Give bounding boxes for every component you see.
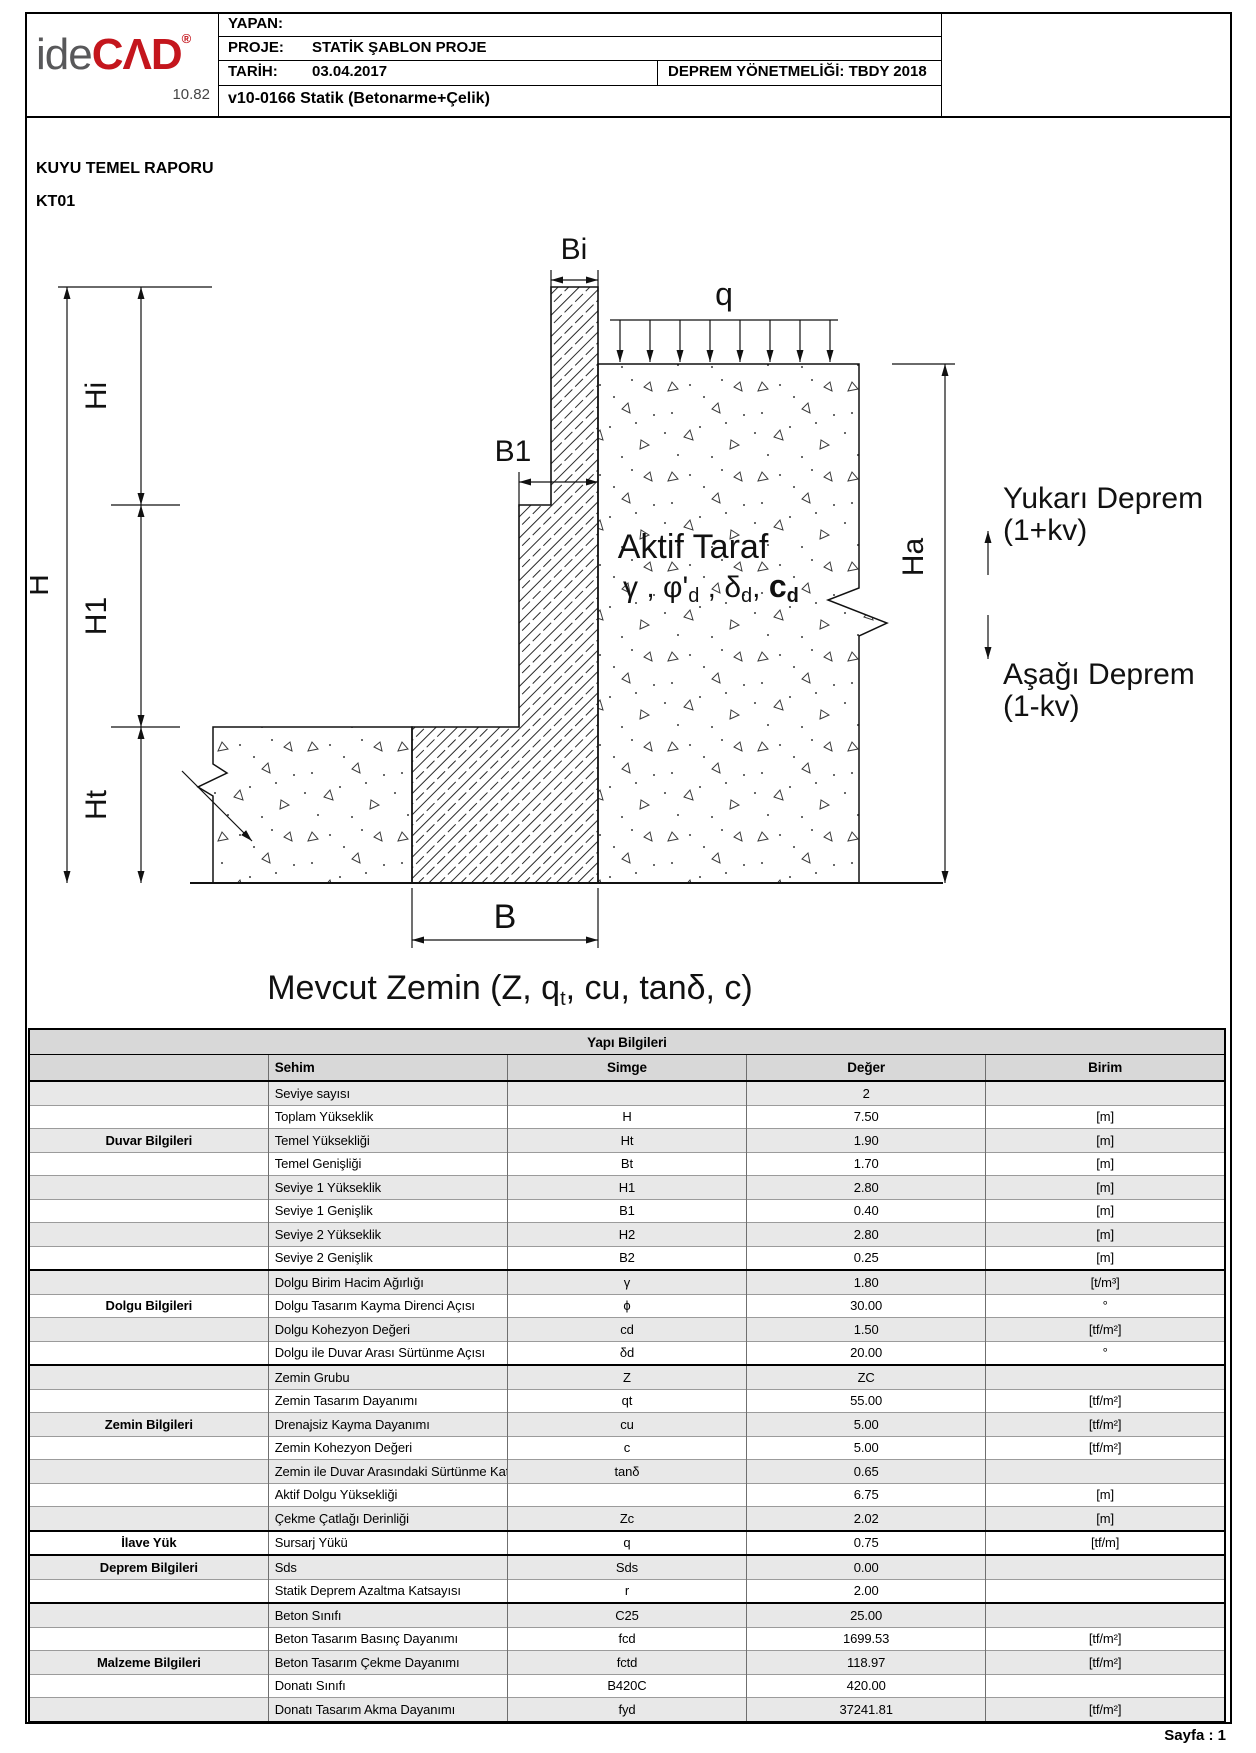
cell-deger: 1.90 xyxy=(747,1129,986,1153)
cell-simge: γ xyxy=(507,1270,746,1294)
cell-simge: Sds xyxy=(507,1555,746,1579)
cell-sehim: Aktif Dolgu Yüksekliği xyxy=(268,1483,507,1507)
cell-sehim: Beton Sınıfı xyxy=(268,1603,507,1627)
table-row: Malzeme BilgileriBeton Tasarım Çekme Day… xyxy=(29,1651,1225,1675)
cell-birim: [tf/m²] xyxy=(986,1436,1225,1460)
cell-simge: B420C xyxy=(507,1674,746,1698)
table-row: Zemin BilgileriDrenajsiz Kayma Dayanımıc… xyxy=(29,1413,1225,1437)
cell-birim: [m] xyxy=(986,1483,1225,1507)
cell-group: Dolgu Bilgileri xyxy=(29,1294,268,1318)
table-row: Zemin Tasarım Dayanımıqt55.00[tf/m²] xyxy=(29,1389,1225,1413)
cell-sehim: Donatı Tasarım Akma Dayanımı xyxy=(268,1698,507,1722)
cell-sehim: Seviye 1 Genişlik xyxy=(268,1199,507,1223)
report-page: ideCΛD® 10.82 YAPAN: PROJE: STATİK ŞABLO… xyxy=(0,0,1256,1753)
cell-birim: [m] xyxy=(986,1129,1225,1153)
table-row: Beton Tasarım Basınç Dayanımıfcd1699.53[… xyxy=(29,1627,1225,1651)
cell-sehim: Zemin Kohezyon Değeri xyxy=(268,1436,507,1460)
retaining-wall-diagram: Hi H1 Ht H Bi B1 q xyxy=(30,195,1230,1025)
cell-simge: fcd xyxy=(507,1627,746,1651)
yapan-label: YAPAN: xyxy=(228,15,283,32)
cell-sehim: Sds xyxy=(268,1555,507,1579)
cell-birim xyxy=(986,1081,1225,1105)
cell-sehim: Beton Tasarım Basınç Dayanımı xyxy=(268,1627,507,1651)
cell-sehim: Zemin Grubu xyxy=(268,1365,507,1389)
dim-label-h1: H1 xyxy=(80,597,113,635)
cell-deger: 1.70 xyxy=(747,1152,986,1176)
asagi-deprem-factor: (1-kv) xyxy=(1003,690,1080,723)
header-divider-right xyxy=(941,12,942,116)
cell-simge: Ht xyxy=(507,1129,746,1153)
cell-birim: [m] xyxy=(986,1507,1225,1531)
cell-deger: 7.50 xyxy=(747,1105,986,1129)
cell-simge: ϕ xyxy=(507,1294,746,1318)
table-row: Dolgu Kohezyon Değericd1.50[tf/m²] xyxy=(29,1318,1225,1342)
cell-deger: 0.25 xyxy=(747,1246,986,1270)
cell-simge: q xyxy=(507,1531,746,1556)
deprem-yonetmeligi: DEPREM YÖNETMELİĞİ: TBDY 2018 xyxy=(668,63,927,80)
cell-simge: Bt xyxy=(507,1152,746,1176)
logo-cad: CΛD xyxy=(92,30,182,79)
cell-deger: 55.00 xyxy=(747,1389,986,1413)
cell-sehim: Seviye 1 Yükseklik xyxy=(268,1176,507,1200)
cell-birim: [tf/m²] xyxy=(986,1651,1225,1675)
cell-birim xyxy=(986,1555,1225,1579)
cell-group xyxy=(29,1318,268,1342)
table-row: Seviye 2 GenişlikB20.25[m] xyxy=(29,1246,1225,1270)
cell-sehim: Drenajsiz Kayma Dayanımı xyxy=(268,1413,507,1437)
header-row-line-2 xyxy=(218,60,941,61)
cell-sehim: Dolgu Tasarım Kayma Direnci Açısı xyxy=(268,1294,507,1318)
cell-deger: 20.00 xyxy=(747,1341,986,1365)
table-row: Dolgu Birim Hacim Ağırlığıγ1.80[t/m³] xyxy=(29,1270,1225,1294)
cell-simge: fctd xyxy=(507,1651,746,1675)
cell-simge: Zc xyxy=(507,1507,746,1531)
cell-birim xyxy=(986,1365,1225,1389)
cell-deger: 37241.81 xyxy=(747,1698,986,1722)
table-row: Temel GenişliğiBt1.70[m] xyxy=(29,1152,1225,1176)
cell-deger: 6.75 xyxy=(747,1483,986,1507)
col-header-sehim: Sehim xyxy=(268,1055,507,1082)
dim-label-hi: Hi xyxy=(80,382,113,410)
cell-simge: B2 xyxy=(507,1246,746,1270)
cell-sehim: Seviye 2 Genişlik xyxy=(268,1246,507,1270)
table-row: Seviye 1 GenişlikB10.40[m] xyxy=(29,1199,1225,1223)
cell-birim: [tf/m] xyxy=(986,1531,1225,1556)
cell-birim: [tf/m²] xyxy=(986,1389,1225,1413)
cell-sehim: Zemin ile Duvar Arasındaki Sürtünme Kats… xyxy=(268,1460,507,1484)
table-header-row: Sehim Simge Değer Birim xyxy=(29,1055,1225,1082)
yapi-bilgileri-table: Yapı Bilgileri Sehim Simge Değer Birim S… xyxy=(28,1028,1226,1723)
load-label-q: q xyxy=(715,276,733,312)
wall-section xyxy=(412,287,598,883)
cell-birim: ° xyxy=(986,1294,1225,1318)
table-row: Toplam YükseklikH7.50[m] xyxy=(29,1105,1225,1129)
cell-simge: H xyxy=(507,1105,746,1129)
cell-sehim: Toplam Yükseklik xyxy=(268,1105,507,1129)
cell-birim: [m] xyxy=(986,1105,1225,1129)
cell-simge: cu xyxy=(507,1413,746,1437)
header-row-line-1 xyxy=(218,36,941,37)
cell-simge: B1 xyxy=(507,1199,746,1223)
cell-group xyxy=(29,1270,268,1294)
cell-group: Malzeme Bilgileri xyxy=(29,1651,268,1675)
tarih-value: 03.04.2017 xyxy=(312,63,387,80)
table-row: İlave YükSursarj Yüküq0.75[tf/m] xyxy=(29,1531,1225,1556)
cell-deger: 2.02 xyxy=(747,1507,986,1531)
report-title: KUYU TEMEL RAPORU xyxy=(36,160,214,178)
dim-label-ht: Ht xyxy=(80,789,113,820)
table-row: Çekme Çatlağı DerinliğiZc2.02[m] xyxy=(29,1507,1225,1531)
cell-sehim: Beton Tasarım Çekme Dayanımı xyxy=(268,1651,507,1675)
cell-sehim: Sursarj Yükü xyxy=(268,1531,507,1556)
cell-simge: H1 xyxy=(507,1176,746,1200)
cell-group xyxy=(29,1199,268,1223)
asagi-deprem-label: Aşağı Deprem xyxy=(1003,658,1195,691)
header-bottom-line xyxy=(25,116,1230,118)
cell-sehim: Zemin Tasarım Dayanımı xyxy=(268,1389,507,1413)
cell-simge xyxy=(507,1483,746,1507)
cell-simge: c xyxy=(507,1436,746,1460)
cell-group xyxy=(29,1674,268,1698)
cell-deger: 5.00 xyxy=(747,1436,986,1460)
table-row: Duvar BilgileriTemel YüksekliğiHt1.90[m] xyxy=(29,1129,1225,1153)
cell-deger: 5.00 xyxy=(747,1413,986,1437)
soil-left-block xyxy=(182,727,412,883)
table-row: Donatı Tasarım Akma Dayanımıfyd37241.81[… xyxy=(29,1698,1225,1722)
cell-deger: 30.00 xyxy=(747,1294,986,1318)
cell-group xyxy=(29,1483,268,1507)
cell-deger: 2.00 xyxy=(747,1579,986,1603)
dim-label-ha: Ha xyxy=(897,538,930,577)
surcharge-load xyxy=(610,320,838,362)
cell-sehim: Statik Deprem Azaltma Katsayısı xyxy=(268,1579,507,1603)
cell-deger: 25.00 xyxy=(747,1603,986,1627)
cell-group xyxy=(29,1105,268,1129)
table-row: Beton SınıfıC2525.00 xyxy=(29,1603,1225,1627)
header-row-line-3 xyxy=(218,85,941,86)
table-row: Zemin GrubuZZC xyxy=(29,1365,1225,1389)
table-row: Deprem BilgileriSdsSds0.00 xyxy=(29,1555,1225,1579)
cell-birim: [tf/m²] xyxy=(986,1318,1225,1342)
cell-birim xyxy=(986,1603,1225,1627)
ha-dimension xyxy=(892,364,955,883)
cell-birim: ° xyxy=(986,1341,1225,1365)
cell-simge: δd xyxy=(507,1341,746,1365)
cell-simge: tanδ xyxy=(507,1460,746,1484)
cell-birim: [m] xyxy=(986,1246,1225,1270)
table-row: Seviye 1 YükseklikH12.80[m] xyxy=(29,1176,1225,1200)
cell-group xyxy=(29,1436,268,1460)
table-row: Donatı SınıfıB420C420.00 xyxy=(29,1674,1225,1698)
tarih-label: TARİH: xyxy=(228,63,278,80)
cell-birim: [tf/m²] xyxy=(986,1627,1225,1651)
cell-group xyxy=(29,1627,268,1651)
table-row: Dolgu BilgileriDolgu Tasarım Kayma Diren… xyxy=(29,1294,1225,1318)
cell-sehim: Dolgu Birim Hacim Ağırlığı xyxy=(268,1270,507,1294)
cell-birim: [tf/m²] xyxy=(986,1413,1225,1437)
header-divider-deprem xyxy=(657,60,658,85)
cell-birim xyxy=(986,1674,1225,1698)
cell-deger: 1.50 xyxy=(747,1318,986,1342)
table-title: Yapı Bilgileri xyxy=(29,1029,1225,1055)
proje-label: PROJE: xyxy=(228,39,284,56)
cell-sehim: Donatı Sınıfı xyxy=(268,1674,507,1698)
col-header-simge: Simge xyxy=(507,1055,746,1082)
col-header-group xyxy=(29,1055,268,1082)
cell-deger: 1.80 xyxy=(747,1270,986,1294)
cell-group xyxy=(29,1698,268,1722)
cell-group xyxy=(29,1341,268,1365)
cell-deger: 0.40 xyxy=(747,1199,986,1223)
cell-sehim: Seviye sayısı xyxy=(268,1081,507,1105)
cell-group xyxy=(29,1365,268,1389)
cell-group xyxy=(29,1460,268,1484)
cell-birim xyxy=(986,1460,1225,1484)
aktif-taraf-label: Aktif Taraf xyxy=(618,528,769,566)
logo-version: 10.82 xyxy=(120,86,210,103)
cell-simge: cd xyxy=(507,1318,746,1342)
cell-deger: 118.97 xyxy=(747,1651,986,1675)
table-title-row: Yapı Bilgileri xyxy=(29,1029,1225,1055)
table-row: Statik Deprem Azaltma Katsayısır2.00 xyxy=(29,1579,1225,1603)
cell-group xyxy=(29,1603,268,1627)
cell-deger: 420.00 xyxy=(747,1674,986,1698)
table-body: Yapı Bilgileri Sehim Simge Değer Birim S… xyxy=(29,1029,1225,1722)
table-row: Dolgu ile Duvar Arası Sürtünme Açısıδd20… xyxy=(29,1341,1225,1365)
proje-value: STATİK ŞABLON PROJE xyxy=(312,39,486,56)
mevcut-zemin-label: Mevcut Zemin (Z, qt, cu, tanδ, c) xyxy=(267,969,753,1010)
cell-sehim: Çekme Çatlağı Derinliği xyxy=(268,1507,507,1531)
cell-simge: r xyxy=(507,1579,746,1603)
table-row: Seviye 2 YükseklikH22.80[m] xyxy=(29,1223,1225,1247)
soil-parameters-label: γ , φ'd , δd, cd xyxy=(623,568,799,607)
cell-sehim: Seviye 2 Yükseklik xyxy=(268,1223,507,1247)
cell-deger: ZC xyxy=(747,1365,986,1389)
logo-ide: ide xyxy=(36,30,92,79)
cell-deger: 0.75 xyxy=(747,1531,986,1556)
idecad-logo: ideCΛD® xyxy=(36,30,190,80)
cell-group xyxy=(29,1176,268,1200)
cell-group xyxy=(29,1246,268,1270)
cell-birim xyxy=(986,1579,1225,1603)
cell-group xyxy=(29,1579,268,1603)
cell-group xyxy=(29,1507,268,1531)
cell-simge: H2 xyxy=(507,1223,746,1247)
cell-birim: [m] xyxy=(986,1199,1225,1223)
col-header-deger: Değer xyxy=(747,1055,986,1082)
cell-simge: Z xyxy=(507,1365,746,1389)
cell-birim: [m] xyxy=(986,1152,1225,1176)
cell-deger: 2.80 xyxy=(747,1176,986,1200)
cell-group xyxy=(29,1389,268,1413)
cell-deger: 0.65 xyxy=(747,1460,986,1484)
version-line: v10-0166 Statik (Betonarme+Çelik) xyxy=(228,90,490,108)
cell-simge: C25 xyxy=(507,1603,746,1627)
table-row: Zemin ile Duvar Arasındaki Sürtünme Kats… xyxy=(29,1460,1225,1484)
col-header-birim: Birim xyxy=(986,1055,1225,1082)
cell-group xyxy=(29,1152,268,1176)
cell-deger: 0.00 xyxy=(747,1555,986,1579)
cell-sehim: Temel Yüksekliği xyxy=(268,1129,507,1153)
table-row: Zemin Kohezyon Değeric5.00[tf/m²] xyxy=(29,1436,1225,1460)
cell-simge xyxy=(507,1081,746,1105)
dim-label-b: B xyxy=(494,898,517,936)
soil-right-block xyxy=(598,364,887,883)
cell-group: Duvar Bilgileri xyxy=(29,1129,268,1153)
cell-group: Deprem Bilgileri xyxy=(29,1555,268,1579)
dim-label-h: H xyxy=(30,574,55,596)
dim-label-bi: Bi xyxy=(561,233,588,266)
dim-label-b1: B1 xyxy=(495,435,532,468)
cell-sehim: Dolgu ile Duvar Arası Sürtünme Açısı xyxy=(268,1341,507,1365)
cell-deger: 1699.53 xyxy=(747,1627,986,1651)
cell-sehim: Temel Genişliği xyxy=(268,1152,507,1176)
table-row: Aktif Dolgu Yüksekliği6.75[m] xyxy=(29,1483,1225,1507)
cell-group: Zemin Bilgileri xyxy=(29,1413,268,1437)
cell-birim: [m] xyxy=(986,1223,1225,1247)
cell-birim: [t/m³] xyxy=(986,1270,1225,1294)
cell-birim: [tf/m²] xyxy=(986,1698,1225,1722)
yukari-deprem-factor: (1+kv) xyxy=(1003,514,1087,547)
cell-simge: qt xyxy=(507,1389,746,1413)
cell-sehim: Dolgu Kohezyon Değeri xyxy=(268,1318,507,1342)
table-row: Seviye sayısı2 xyxy=(29,1081,1225,1105)
cell-group: İlave Yük xyxy=(29,1531,268,1556)
cell-group xyxy=(29,1223,268,1247)
yukari-deprem-label: Yukarı Deprem xyxy=(1003,482,1203,515)
logo-registered-mark: ® xyxy=(182,31,191,46)
header-divider-logo xyxy=(218,12,219,116)
cell-group xyxy=(29,1081,268,1105)
cell-deger: 2 xyxy=(747,1081,986,1105)
page-number: Sayfa : 1 xyxy=(1026,1727,1226,1744)
cell-simge: fyd xyxy=(507,1698,746,1722)
cell-birim: [m] xyxy=(986,1176,1225,1200)
cell-deger: 2.80 xyxy=(747,1223,986,1247)
